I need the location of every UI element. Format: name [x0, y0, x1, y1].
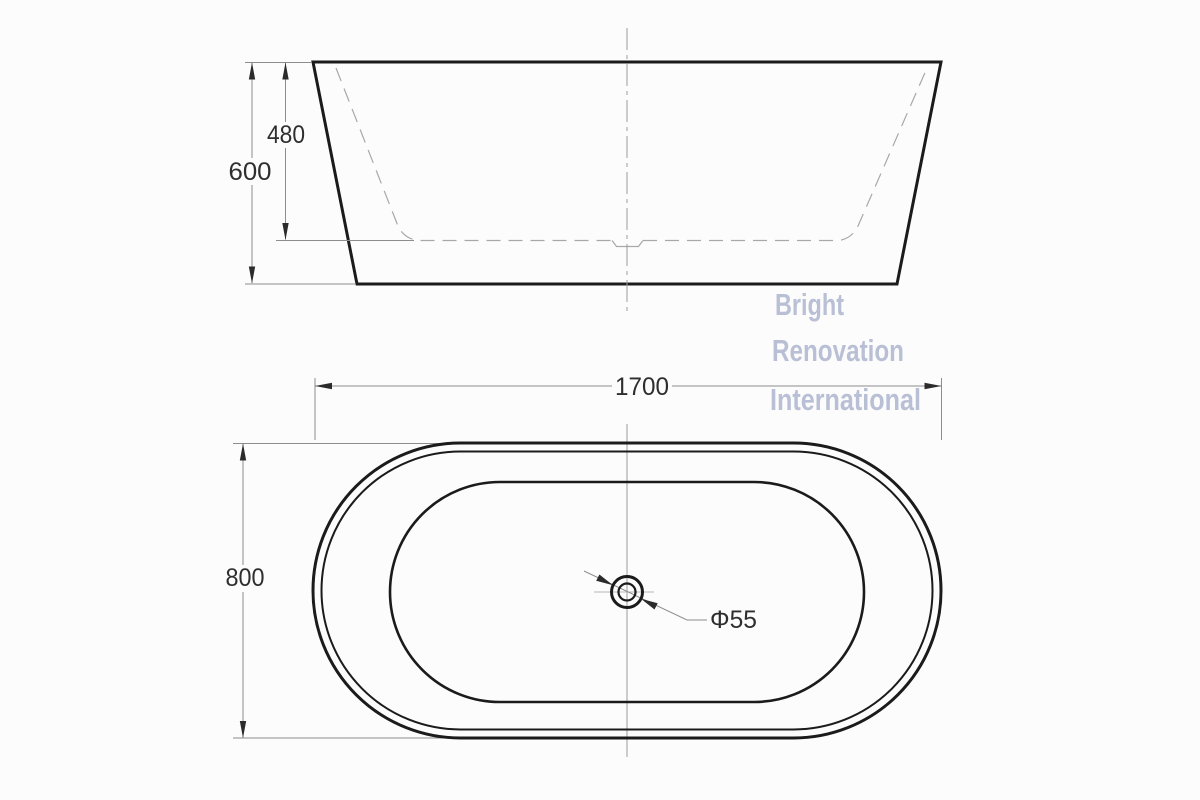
- dim-800-label: 800: [226, 564, 265, 592]
- watermark: Bright Renovation International: [770, 287, 921, 417]
- dim-800-extension-lines: [233, 444, 468, 739]
- dim-480-arrow-bottom: [282, 223, 288, 240]
- dim-600-arrow-bottom: [249, 267, 255, 284]
- dim-480-arrow-top: [282, 63, 288, 80]
- dim-1700-arrow-right: [925, 383, 942, 389]
- dim-800: 800: [224, 444, 468, 739]
- bathtub-technical-drawing: 600 480 1700 800: [0, 0, 1200, 800]
- drain: Φ55: [584, 571, 757, 634]
- dim-600-label: 600: [229, 158, 272, 186]
- dim-1700-label: 1700: [615, 373, 669, 401]
- drawing-sheet: 600 480 1700 800: [0, 0, 1200, 800]
- drain-diameter-label: Φ55: [710, 606, 757, 634]
- dim-1700-arrow-left: [315, 383, 332, 389]
- front-view: 600 480: [228, 28, 941, 313]
- dim-600-arrow-top: [249, 63, 255, 80]
- dim-480-label: 480: [267, 121, 305, 149]
- dim-800-arrow-bottom: [240, 721, 246, 738]
- watermark-line-2: Renovation: [772, 333, 904, 368]
- drain-dim-arrow-upper-left: [596, 575, 613, 586]
- tub-front-inner-hidden-line: [336, 68, 927, 241]
- dim-800-arrow-top: [240, 444, 246, 461]
- watermark-line-1: Bright: [775, 287, 844, 322]
- drain-dim-arrow-lower-right: [641, 599, 658, 610]
- watermark-line-3: International: [770, 382, 921, 417]
- top-view: 1700 800 Φ55: [224, 373, 942, 757]
